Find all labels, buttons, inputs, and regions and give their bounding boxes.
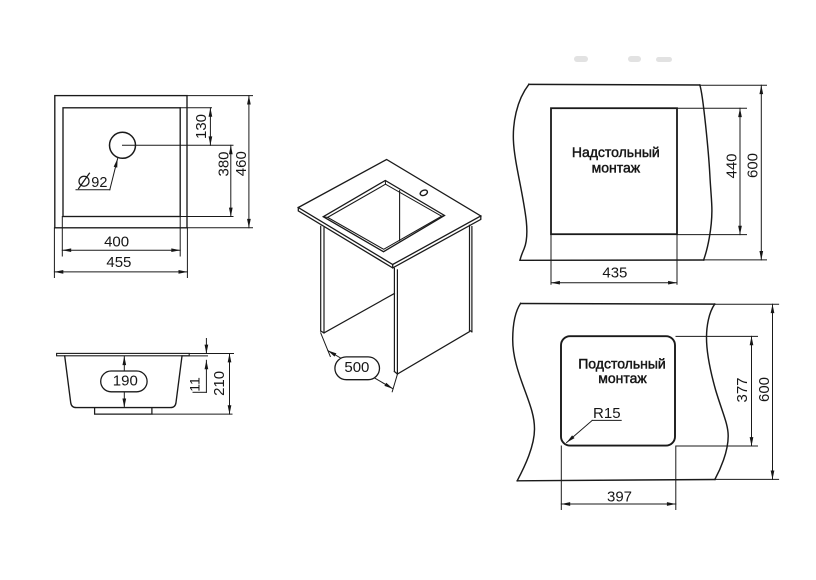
svg-text:500: 500 <box>344 359 369 376</box>
svg-text:монтаж: монтаж <box>592 160 641 176</box>
svg-text:600: 600 <box>756 377 773 402</box>
svg-text:435: 435 <box>602 264 627 281</box>
svg-text:377: 377 <box>734 377 751 402</box>
svg-text:11: 11 <box>186 377 202 392</box>
svg-text:Надстольный: Надстольный <box>572 144 660 160</box>
svg-text:210: 210 <box>211 371 228 396</box>
svg-text:130: 130 <box>193 114 210 139</box>
svg-text:190: 190 <box>113 372 138 389</box>
svg-text:монтаж: монтаж <box>598 370 647 386</box>
svg-text:455: 455 <box>106 254 131 271</box>
svg-text:380: 380 <box>216 151 233 176</box>
svg-text:92: 92 <box>91 175 107 191</box>
svg-text:400: 400 <box>104 234 129 251</box>
svg-text:Подстольный: Подстольный <box>578 355 666 371</box>
svg-text:600: 600 <box>744 153 761 178</box>
svg-text:460: 460 <box>233 151 250 176</box>
svg-text:440: 440 <box>724 153 741 178</box>
svg-text:397: 397 <box>607 489 632 506</box>
svg-text:R15: R15 <box>593 405 621 422</box>
